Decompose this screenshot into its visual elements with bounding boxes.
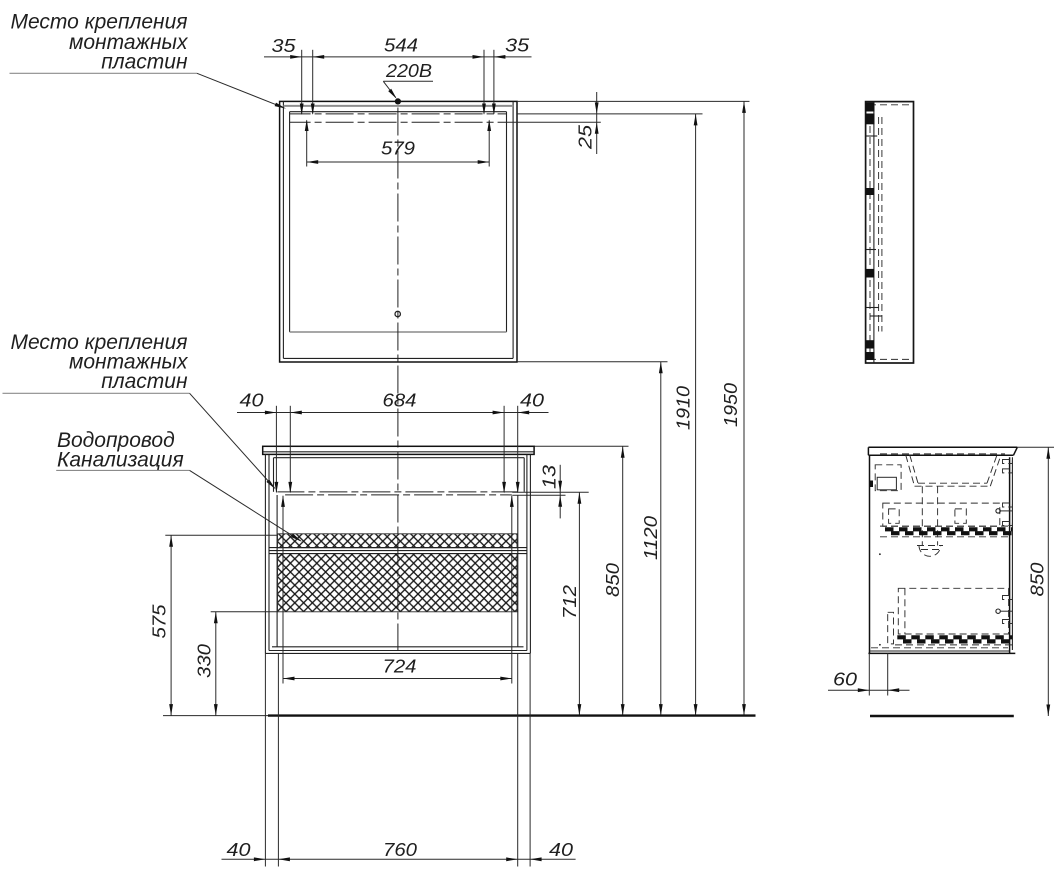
svg-text:40: 40: [240, 391, 264, 411]
svg-text:684: 684: [383, 391, 417, 411]
svg-text:850: 850: [1028, 563, 1048, 597]
svg-text:220В: 220В: [385, 61, 432, 81]
svg-text:25: 25: [576, 124, 596, 150]
svg-text:40: 40: [520, 391, 544, 411]
svg-text:850: 850: [603, 563, 623, 597]
svg-text:712: 712: [560, 585, 580, 619]
svg-text:пластин: пластин: [101, 51, 188, 74]
svg-text:544: 544: [384, 36, 418, 56]
svg-text:330: 330: [195, 644, 215, 678]
svg-text:Канализация: Канализация: [57, 449, 184, 472]
svg-text:1910: 1910: [674, 386, 694, 430]
svg-text:575: 575: [150, 603, 170, 638]
svg-text:пластин: пластин: [101, 370, 188, 393]
svg-text:760: 760: [383, 840, 417, 860]
svg-text:1950: 1950: [721, 383, 741, 427]
svg-text:35: 35: [505, 36, 530, 56]
svg-text:724: 724: [383, 657, 417, 677]
svg-text:40: 40: [227, 840, 251, 860]
svg-text:60: 60: [833, 670, 857, 690]
svg-text:579: 579: [381, 139, 415, 159]
svg-text:1120: 1120: [641, 516, 661, 560]
svg-text:40: 40: [549, 840, 573, 860]
svg-text:35: 35: [272, 36, 297, 56]
svg-text:13: 13: [540, 465, 560, 489]
